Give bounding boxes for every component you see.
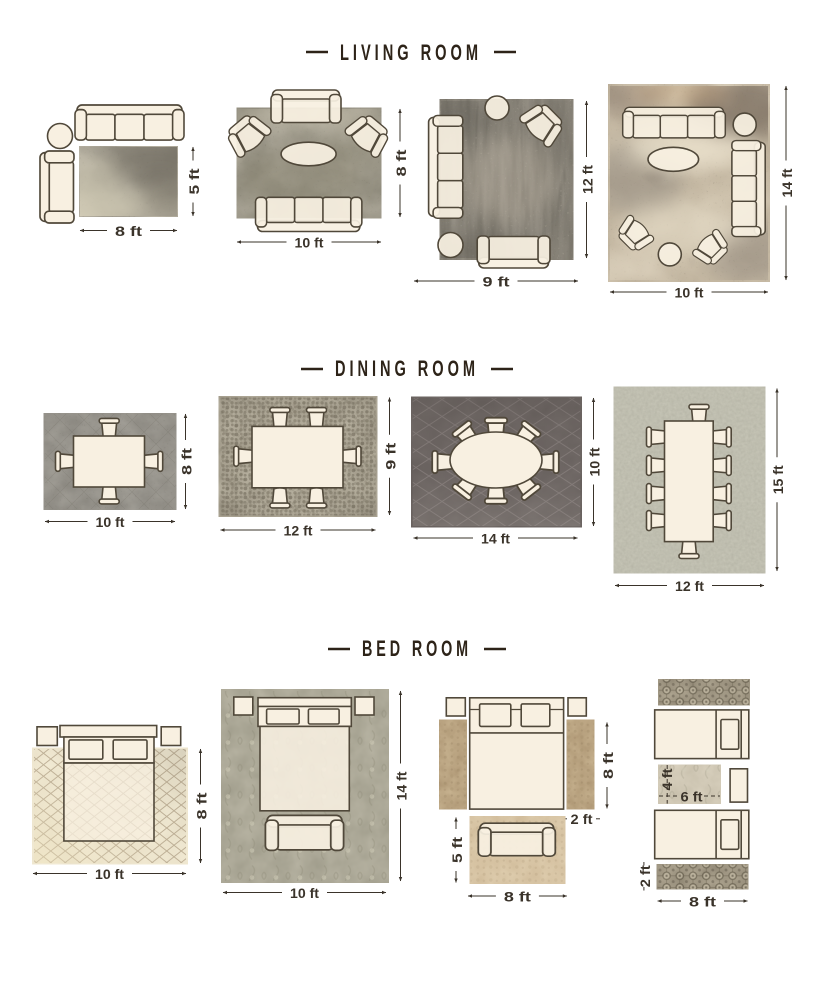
svg-text:14 ft: 14 ft [780, 168, 795, 197]
svg-text:14 ft: 14 ft [481, 532, 510, 547]
svg-text:8 ft: 8 ft [504, 890, 532, 905]
svg-text:10 ft: 10 ft [295, 236, 324, 251]
svg-text:BED ROOM: BED ROOM [362, 636, 472, 661]
svg-text:12 ft: 12 ft [675, 579, 704, 594]
svg-text:8 ft: 8 ft [115, 224, 143, 239]
svg-text:2 ft: 2 ft [638, 865, 653, 887]
svg-text:10 ft: 10 ft [675, 286, 704, 301]
svg-text:12 ft: 12 ft [284, 524, 313, 539]
svg-text:8 ft: 8 ft [689, 895, 717, 910]
svg-text:8 ft: 8 ft [601, 751, 616, 779]
svg-text:10 ft: 10 ft [96, 515, 125, 530]
svg-text:4 ft: 4 ft [660, 768, 675, 790]
svg-text:2 ft: 2 ft [571, 812, 593, 827]
svg-text:6 ft: 6 ft [681, 790, 703, 805]
svg-text:10 ft: 10 ft [290, 886, 319, 901]
svg-text:5 ft: 5 ft [187, 168, 202, 194]
svg-text:12 ft: 12 ft [581, 165, 596, 194]
svg-text:9 ft: 9 ft [384, 442, 399, 470]
svg-text:8 ft: 8 ft [195, 792, 210, 820]
svg-text:8 ft: 8 ft [394, 149, 409, 177]
svg-text:8 ft: 8 ft [180, 447, 195, 475]
svg-text:9 ft: 9 ft [483, 275, 511, 290]
svg-text:LIVING ROOM: LIVING ROOM [340, 40, 482, 65]
svg-text:15 ft: 15 ft [771, 465, 786, 494]
svg-text:14 ft: 14 ft [395, 771, 410, 800]
svg-text:10 ft: 10 ft [95, 867, 124, 882]
svg-text:10 ft: 10 ft [588, 447, 603, 476]
svg-text:5 ft: 5 ft [450, 837, 465, 863]
svg-text:DINING ROOM: DINING ROOM [335, 356, 479, 381]
